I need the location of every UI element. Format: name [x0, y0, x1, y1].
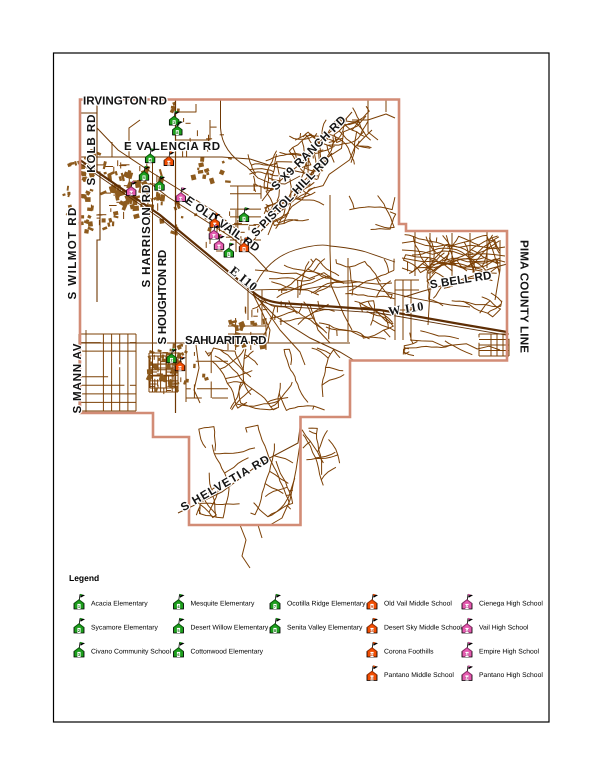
svg-text:Ocotilla Ridge Elementary: Ocotilla Ridge Elementary — [287, 601, 366, 608]
svg-text:16: 16 — [465, 675, 470, 680]
svg-text:Empire High School: Empire High School — [479, 649, 540, 656]
svg-text:14: 14 — [465, 628, 470, 633]
svg-text:14: 14 — [129, 191, 134, 196]
svg-text:Acacia Elementary: Acacia Elementary — [91, 601, 148, 608]
svg-text:Pantano High School: Pantano High School — [479, 672, 543, 679]
svg-text:16: 16 — [212, 234, 217, 239]
svg-text:Civano Community School: Civano Community School — [91, 649, 172, 656]
svg-text:12: 12 — [370, 675, 375, 680]
svg-text:Cienega High School: Cienega High School — [479, 601, 543, 608]
svg-text:Sycamore Elementary: Sycamore Elementary — [91, 625, 158, 632]
svg-text:S HARRISON RD: S HARRISON RD — [140, 184, 153, 288]
svg-text:IRVINGTON RD: IRVINGTON RD — [83, 95, 167, 108]
svg-text:PIMA COUNTY LINE: PIMA COUNTY LINE — [518, 240, 531, 353]
svg-text:13: 13 — [465, 604, 470, 609]
svg-text:15: 15 — [465, 652, 470, 657]
svg-text:S HOUGHTON RD: S HOUGHTON RD — [156, 250, 169, 344]
svg-text:Cottonwood Elementary: Cottonwood Elementary — [191, 649, 264, 656]
svg-text:S KOLB RD: S KOLB RD — [85, 114, 98, 186]
svg-text:Legend: Legend — [69, 573, 99, 583]
svg-text:S MANN AV: S MANN AV — [71, 343, 84, 414]
svg-text:Pantano Middle School: Pantano Middle School — [384, 672, 454, 679]
svg-text:13: 13 — [217, 245, 222, 250]
svg-text:S WILMOT RD: S WILMOT RD — [66, 206, 79, 299]
svg-text:Senita Valley Elementary: Senita Valley Elementary — [287, 625, 363, 632]
svg-text:E VALENCIA RD: E VALENCIA RD — [124, 140, 221, 153]
svg-text:Desert Sky Middle School: Desert Sky Middle School — [384, 625, 462, 632]
svg-text:10: 10 — [370, 628, 375, 633]
svg-text:15: 15 — [179, 197, 184, 202]
svg-text:Mesquite Elementary: Mesquite Elementary — [191, 601, 255, 608]
svg-text:Corona Foothills: Corona Foothills — [384, 649, 434, 656]
svg-text:Vail High School: Vail High School — [479, 625, 529, 632]
svg-text:SAHUARITA RD: SAHUARITA RD — [185, 334, 266, 347]
svg-text:Desert Willow Elementary: Desert Willow Elementary — [191, 625, 269, 632]
svg-text:10: 10 — [167, 161, 172, 166]
svg-text:Old Vail Middle School: Old Vail Middle School — [384, 601, 452, 608]
